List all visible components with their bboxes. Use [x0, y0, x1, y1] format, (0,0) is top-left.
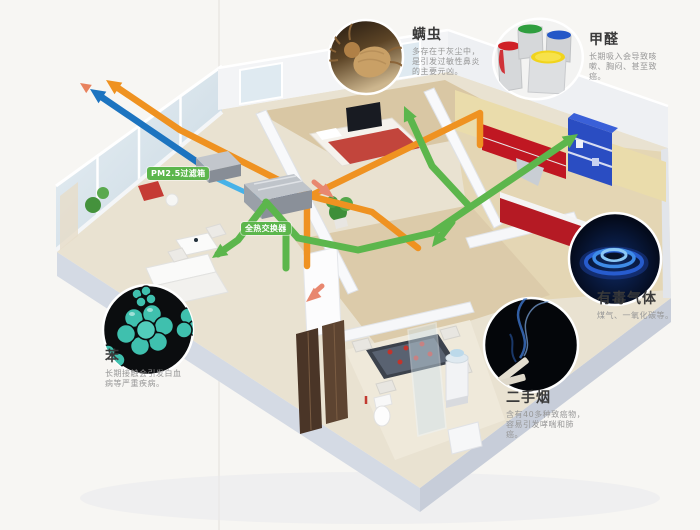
outdoor-air-arrow	[80, 83, 92, 93]
ground-shadow	[80, 472, 660, 524]
callout-title: 苯	[105, 350, 183, 365]
callout-formaldehyde: 甲醛 长期吸入会导致咳嗽、胸闷、甚至致癌。	[589, 33, 669, 82]
callout-secondhand-smoke: 二手烟 含有40多种致癌物，容易引发哮喘和肺癌。	[506, 391, 586, 440]
callout-title: 甲醛	[589, 33, 669, 48]
pm25-filter-label: PM2.5过滤箱	[147, 167, 209, 180]
callout-title: 有毒气体	[597, 292, 674, 307]
callout-title: 螨虫	[412, 28, 486, 43]
callout-title: 二手烟	[506, 391, 586, 406]
heat-exchanger-label: 全热交换器	[241, 222, 291, 235]
balcony-plant	[85, 197, 101, 213]
callout-desc: 煤气、一氧化碳等。	[597, 311, 674, 321]
toilet	[374, 406, 390, 426]
bedroom-window	[240, 63, 282, 104]
callout-dust-mite: 螨虫 多存在于灰尘中，是引发过敏性鼻炎的主要元凶。	[412, 28, 486, 77]
infographic-canvas: PM2.5过滤箱 全热交换器 螨虫 多存在于灰尘中，是引发过敏性鼻炎的主要元凶。…	[0, 0, 700, 530]
callout-desc: 多存在于灰尘中，是引发过敏性鼻炎的主要元凶。	[412, 47, 486, 77]
callout-benzene: 苯 长期接触会引发白血病等严重疾病。	[105, 350, 183, 389]
callout-desc: 长期接触会引发白血病等严重疾病。	[105, 369, 183, 389]
callout-toxic-gas: 有毒气体 煤气、一氧化碳等。	[597, 292, 674, 321]
callout-desc: 长期吸入会导致咳嗽、胸闷、甚至致癌。	[589, 52, 669, 82]
water-dispenser	[446, 357, 468, 401]
callout-desc: 含有40多种致癌物，容易引发哮喘和肺癌。	[506, 410, 586, 440]
